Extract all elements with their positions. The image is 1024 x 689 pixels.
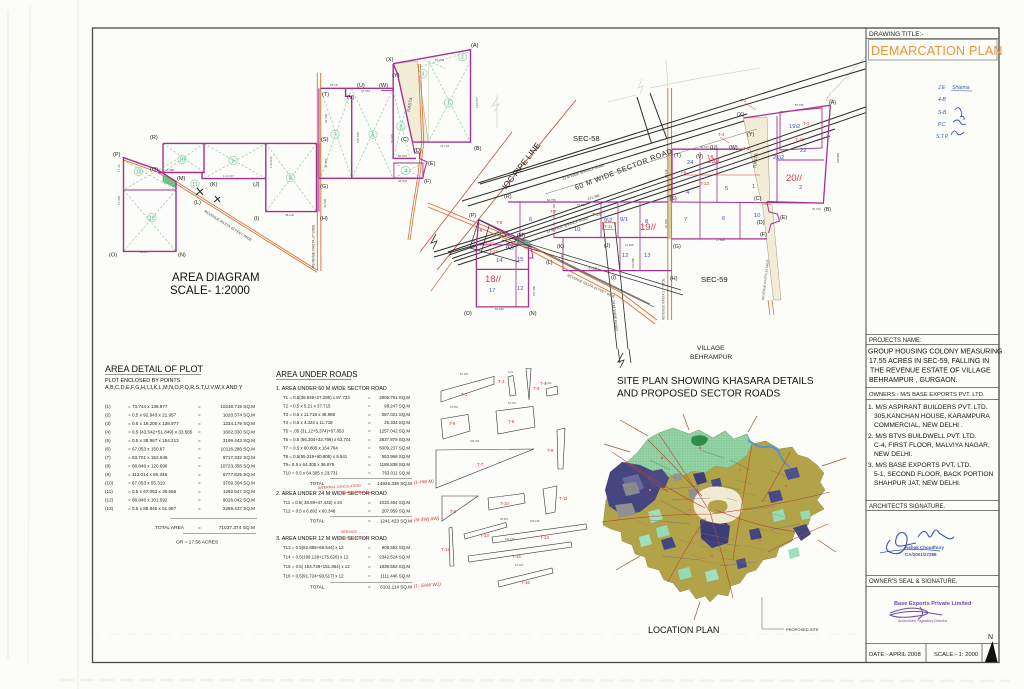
svg-text:207.959 SQ.M: 207.959 SQ.M <box>382 508 411 513</box>
svg-text:SERVICE: SERVICE <box>341 530 357 534</box>
svg-text:7: 7 <box>334 133 337 139</box>
svg-text:15: 15 <box>517 257 523 263</box>
svg-text:T-14: T-14 <box>592 212 601 217</box>
svg-text:=: = <box>368 403 371 408</box>
svg-text:(A): (A) <box>829 100 836 106</box>
svg-text:TOTAL: TOTAL <box>310 585 325 590</box>
svg-text:22: 22 <box>800 148 806 154</box>
svg-text:=: = <box>198 447 201 452</box>
svg-text:SCALE:- 1: 2000: SCALE:- 1: 2000 <box>934 652 979 658</box>
svg-text:24: 24 <box>687 160 694 166</box>
svg-text:10116.286 SQ.M: 10116.286 SQ.M <box>221 447 256 452</box>
svg-text:2. AREA UNDER 24 M WIDE SECTOR: 2. AREA UNDER 24 M WIDE SECTOR ROAD <box>276 491 387 497</box>
svg-text:1033.464 SQ.M: 1033.464 SQ.M <box>379 500 410 505</box>
svg-text:T-5: T-5 <box>707 154 714 159</box>
svg-text:4.324: 4.324 <box>545 381 552 385</box>
svg-text:(3): (3) <box>105 421 111 426</box>
svg-text:(G): (G) <box>673 244 681 250</box>
svg-text:T14 = 0.5(199.128+175.626) x 1: T14 = 0.5(199.128+175.626) x 12 <box>283 555 349 560</box>
svg-text:=: = <box>198 472 201 477</box>
svg-text:PLOT ENCLOSED BY POINTS: PLOT ENCLOSED BY POINTS <box>105 378 181 384</box>
svg-text:(Q): (Q) <box>150 167 158 173</box>
svg-text:1602.330 SQ.M: 1602.330 SQ.M <box>223 430 255 435</box>
svg-text:553.968 SQ.M: 553.968 SQ.M <box>382 454 411 459</box>
svg-text:T-1: T-1 <box>803 121 810 126</box>
svg-text:12: 12 <box>517 286 523 292</box>
svg-text:12.319: 12.319 <box>625 243 634 247</box>
svg-text:=: = <box>368 574 371 579</box>
svg-text:53.627: 53.627 <box>560 254 564 263</box>
svg-text:=: = <box>368 395 371 400</box>
svg-text:1.53.036: 1.53.036 <box>269 156 273 168</box>
svg-text:(L): (L) <box>194 200 201 206</box>
svg-text:9/1: 9/1 <box>620 217 628 223</box>
svg-text:Ashok Choudhury: Ashok Choudhury <box>905 545 944 550</box>
svg-text:T-16: T-16 <box>795 137 804 142</box>
svg-text:Sharma: Sharma <box>952 85 970 91</box>
svg-text:T-12: T-12 <box>588 266 597 271</box>
svg-text:=: = <box>368 508 371 513</box>
svg-text:1.2.3.17: 1.2.3.17 <box>223 174 234 178</box>
svg-text:17.36: 17.36 <box>117 164 121 172</box>
svg-text:= 88.846 x 101.592: = 88.846 x 101.592 <box>128 498 168 503</box>
svg-text:50.607: 50.607 <box>398 154 408 158</box>
svg-text:17.648: 17.648 <box>716 238 725 242</box>
svg-text:(M): (M) <box>177 176 186 182</box>
svg-text:T-13: T-13 <box>700 181 709 186</box>
svg-text:=: = <box>198 481 201 486</box>
svg-text:= 0.5 x 38.967 x 164.213: = 0.5 x 38.967 x 164.213 <box>128 438 179 443</box>
svg-text:19\2: 19\2 <box>789 124 800 130</box>
svg-text:1188.838 SQ.M: 1188.838 SQ.M <box>380 462 411 467</box>
svg-text:(P): (P) <box>469 213 476 219</box>
svg-text:47.054: 47.054 <box>361 89 371 93</box>
svg-text:=: = <box>198 455 201 460</box>
svg-text:T5 = .05 (31.12+5.374)+67.053: T5 = .05 (31.12+5.374)+67.053 <box>283 429 344 434</box>
svg-text:(D): (D) <box>414 148 422 154</box>
svg-text:T-15: T-15 <box>512 554 521 559</box>
svg-text:87.733: 87.733 <box>460 372 468 376</box>
svg-text:TOTAL: TOTAL <box>310 519 325 524</box>
svg-text:(F): (F) <box>760 232 767 238</box>
svg-text:(L): (L) <box>546 260 553 266</box>
svg-text:8: 8 <box>289 176 292 182</box>
svg-text:=: = <box>368 454 371 459</box>
svg-text:(R): (R) <box>504 194 512 200</box>
svg-text:(10): (10) <box>105 481 114 486</box>
svg-text:=: = <box>368 555 371 560</box>
svg-text:138.984: 138.984 <box>836 152 840 163</box>
svg-text:10: 10 <box>179 158 185 164</box>
svg-text:1111.446 SQ.M: 1111.446 SQ.M <box>380 574 410 579</box>
svg-text:= 67.053 x 150.87: = 67.053 x 150.87 <box>128 447 165 452</box>
svg-text:NEW DELHI.: NEW DELHI. <box>874 451 913 458</box>
svg-text:T-5: T-5 <box>508 419 515 424</box>
svg-text:1839.552 SQ.M: 1839.552 SQ.M <box>379 564 410 569</box>
svg-text:5.21: 5.21 <box>508 370 514 374</box>
svg-text:(6): (6) <box>105 447 111 452</box>
svg-text:(S): (S) <box>321 137 329 143</box>
svg-text:199.128: 199.128 <box>530 519 540 523</box>
svg-text:138.977: 138.977 <box>475 97 479 108</box>
svg-text:3199.443 SQ.M: 3199.443 SQ.M <box>223 438 255 443</box>
svg-text:150.546: 150.546 <box>356 132 360 143</box>
svg-text:SEC-58: SEC-58 <box>573 134 600 143</box>
svg-text:62.040: 62.040 <box>495 307 504 311</box>
svg-text:PROPOSED SITE: PROPOSED SITE <box>786 627 819 632</box>
svg-text:(2): (2) <box>105 413 111 418</box>
svg-text:5: 5 <box>725 186 728 192</box>
svg-text:(9): (9) <box>105 472 111 477</box>
svg-text:=: = <box>368 519 371 524</box>
svg-text:(S): (S) <box>670 196 677 202</box>
svg-text:T6 = 0.5 (56.304+32.796) x 63.: T6 = 0.5 (56.304+32.796) x 63.701 <box>283 437 351 442</box>
svg-text:REVENUE RASTA 17' WIDE: REVENUE RASTA 17' WIDE <box>312 224 316 268</box>
svg-text:(W): (W) <box>379 83 388 89</box>
svg-text:T3 = 0.5 x 11.718 x 48.988: T3 = 0.5 x 11.718 x 48.988 <box>283 412 336 417</box>
svg-text:(T): (T) <box>322 92 329 98</box>
svg-text:3. AREA UNDER 12 M WIDE SECTOR: 3. AREA UNDER 12 M WIDE SECTOR ROAD <box>276 536 387 542</box>
svg-text:=: = <box>368 445 371 450</box>
svg-text:(F): (F) <box>424 179 431 185</box>
svg-text:19//: 19// <box>640 222 656 233</box>
svg-text:63.701: 63.701 <box>508 401 516 405</box>
svg-text:T-7: T-7 <box>477 462 484 467</box>
svg-text:= 0.5 x 92.943 x 21.957: = 0.5 x 92.943 x 21.957 <box>128 413 177 418</box>
svg-text:17.356: 17.356 <box>117 195 121 205</box>
svg-text:(O): (O) <box>109 253 117 259</box>
svg-text:(N): (N) <box>178 253 186 259</box>
svg-text:47.380: 47.380 <box>165 168 175 172</box>
svg-text:T-11: T-11 <box>604 224 613 229</box>
svg-text:=: = <box>198 498 201 503</box>
svg-text:T13 = 0.5(82.888+68.544) x 12: T13 = 0.5(82.888+68.544) x 12 <box>283 545 344 550</box>
svg-text:62.24: 62.24 <box>140 250 148 254</box>
svg-text:98.247 SQ.M: 98.247 SQ.M <box>384 403 410 408</box>
svg-text:(C): (C) <box>401 137 409 143</box>
svg-text:DRAWING TITLE:-: DRAWING TITLE:- <box>869 31 924 38</box>
svg-text:T-13: T-13 <box>489 249 498 254</box>
svg-text:T-6: T-6 <box>680 170 687 175</box>
svg-text:2269.437 SQ.M: 2269.437 SQ.M <box>223 506 255 511</box>
svg-text:3709.304 SQ.M: 3709.304 SQ.M <box>223 481 255 486</box>
svg-text:1241.423 SQ.M: 1241.423 SQ.M <box>380 519 412 524</box>
svg-text:(N): (N) <box>529 311 537 317</box>
svg-text:AREA DETAIL OF PLOT: AREA DETAIL OF PLOT <box>105 364 204 374</box>
svg-text:287.021 SQ.M: 287.021 SQ.M <box>382 412 411 417</box>
svg-text:(O): (O) <box>464 311 472 317</box>
svg-text:AREA DIAGRAM: AREA DIAGRAM <box>172 272 260 284</box>
svg-text:Authorised Signatory Director: Authorised Signatory Director <box>898 619 948 623</box>
svg-text:92.796: 92.796 <box>324 113 328 123</box>
svg-text:T-8: T-8 <box>449 421 456 426</box>
svg-text:T16 = 0.5(91.724+93.517) x 12: T16 = 0.5(91.724+93.517) x 12 <box>283 574 344 579</box>
svg-text:BEHRAMPUR: BEHRAMPUR <box>690 354 732 361</box>
svg-text:AREA UNDER ROADS: AREA UNDER ROADS <box>276 370 358 379</box>
svg-text:= 73.744 x 138.977: = 73.744 x 138.977 <box>128 404 168 409</box>
svg-text:T1 = 0.5(38.949+27.295) x 87.7: T1 = 0.5(38.949+27.295) x 87.733 <box>283 395 350 400</box>
svg-text:(K): (K) <box>557 244 564 250</box>
svg-text:908.592 SQ.M: 908.592 SQ.M <box>382 545 411 550</box>
svg-text:OWNERS:- M/S BASE EXPORTS PVT.: OWNERS:- M/S BASE EXPORTS PVT. LTD. <box>869 392 985 398</box>
svg-text:67.736: 67.736 <box>795 103 804 107</box>
svg-text:T-3: T-3 <box>743 146 750 151</box>
svg-text:(Y): (Y) <box>392 73 400 79</box>
svg-text:= 67.053 x 55.319: = 67.053 x 55.319 <box>128 481 165 486</box>
svg-text:T-14: T-14 <box>540 535 549 540</box>
svg-text:BEHRAMPUR , GURGAON.: BEHRAMPUR , GURGAON. <box>869 377 958 384</box>
svg-text:A,B,C,D,E,F,G,H,I,J,K,L,M,N,O,: A,B,C,D,E,F,G,H,I,J,K,L,M,N,O,P,Q,R,S,T,… <box>105 385 243 391</box>
svg-text:1: 1 <box>752 184 755 190</box>
svg-text:=: = <box>368 564 371 569</box>
svg-text:=: = <box>368 481 371 486</box>
svg-text:64.75: 64.75 <box>330 83 338 87</box>
svg-text:(T): (T) <box>674 153 681 159</box>
svg-text:(W): (W) <box>729 145 738 151</box>
svg-text:60.707: 60.707 <box>700 145 709 149</box>
svg-text:N: N <box>988 634 993 641</box>
svg-text:DATE:- APRIL 2008: DATE:- APRIL 2008 <box>869 652 921 658</box>
svg-text:SITE PLAN SHOWING KHASARA DETA: SITE PLAN SHOWING KHASARA DETAILS <box>617 376 814 387</box>
svg-text:17.55 ACRES IN SEC-59, FALLING: 17.55 ACRES IN SEC-59, FALLING IN <box>869 358 989 365</box>
svg-text:84.756: 84.756 <box>547 198 556 202</box>
svg-text:(C): (C) <box>754 196 762 202</box>
svg-text:(E): (E) <box>428 161 436 167</box>
svg-text:(4): (4) <box>105 430 111 435</box>
svg-text:T2 = 0.5 x 5.21 x 37.715: T2 = 0.5 x 5.21 x 37.715 <box>283 403 331 408</box>
svg-text:2342.524 SQ.M: 2342.524 SQ.M <box>379 555 410 560</box>
svg-text:9026.042 SQ.M: 9026.042 SQ.M <box>223 498 255 503</box>
svg-text:PROJECTS NAME:: PROJECTS NAME: <box>869 338 922 344</box>
svg-text:Base Exports Private Limited: Base Exports Private Limited <box>894 601 972 607</box>
svg-text:S.T.P.: S.T.P. <box>936 134 949 140</box>
svg-text:10: 10 <box>754 213 760 219</box>
svg-text:OWNER'S SEAL & SIGNATURE.: OWNER'S SEAL & SIGNATURE. <box>869 579 958 585</box>
svg-text:4-B: 4-B <box>938 97 946 103</box>
svg-text:T-1: T-1 <box>461 392 468 397</box>
svg-text:(M): (M) <box>517 233 525 239</box>
svg-text:18//: 18// <box>485 274 501 285</box>
svg-text:10248.719 SQ.M: 10248.719 SQ.M <box>220 404 255 409</box>
svg-text:64.138: 64.138 <box>664 169 668 178</box>
svg-text:P.C: P.C <box>938 122 946 128</box>
svg-text:(13): (13) <box>105 506 114 511</box>
svg-text:6: 6 <box>372 133 375 139</box>
svg-text:CA/2001/27298: CA/2001/27298 <box>905 552 937 557</box>
svg-text:= 0.5 x 19.200 x 138.977: = 0.5 x 19.200 x 138.977 <box>128 421 179 426</box>
svg-text:(1): (1) <box>105 404 111 409</box>
svg-text:= 0.5 x 67.053 x 38.556: = 0.5 x 67.053 x 38.556 <box>128 489 177 494</box>
svg-text:COMMERCIAL, NEW DELHI .: COMMERCIAL, NEW DELHI . <box>874 422 963 429</box>
svg-text:48.586: 48.586 <box>324 158 328 168</box>
svg-text:T-13: T-13 <box>480 533 489 538</box>
svg-text:(X): (X) <box>386 57 394 63</box>
svg-text:55.319: 55.319 <box>500 517 508 521</box>
svg-text:GROUP HOUSING COLONY MEASURING: GROUP HOUSING COLONY MEASURING <box>868 349 1002 356</box>
svg-text:1334.179 SQ.M: 1334.179 SQ.M <box>223 421 255 426</box>
svg-text:6: 6 <box>722 216 725 222</box>
svg-text:T8 = 0.5(55.319+60.805) x 9.54: T8 = 0.5(55.319+60.805) x 9.541 <box>283 454 348 459</box>
svg-text:2: 2 <box>461 55 464 61</box>
svg-text:(X): (X) <box>737 112 744 118</box>
svg-text:7: 7 <box>684 217 687 223</box>
svg-text:87.849: 87.849 <box>435 58 445 62</box>
svg-text:(J): (J) <box>253 182 260 188</box>
svg-text:TOTAL AREA: TOTAL AREA <box>155 525 185 531</box>
svg-text:ARCHITECTS SIGNATURE.: ARCHITECTS SIGNATURE. <box>869 504 946 510</box>
svg-text:VILLAGE: VILLAGE <box>697 345 725 352</box>
svg-text:(D): (D) <box>757 220 765 226</box>
svg-text:48.240: 48.240 <box>285 213 295 217</box>
svg-text:= 0.5 (43.542+51.849) x 33.585: = 0.5 (43.542+51.849) x 33.585 <box>128 430 193 435</box>
svg-text:=: = <box>198 404 201 409</box>
svg-text:14: 14 <box>496 258 503 264</box>
svg-text:T9= 0.5 x 64.305 x 36.975: T9= 0.5 x 64.305 x 36.975 <box>283 462 335 467</box>
svg-text:=: = <box>198 526 201 531</box>
svg-text:(J): (J) <box>604 243 610 249</box>
svg-text:T4 = 0.5 x 4.324 x 11.718: T4 = 0.5 x 4.324 x 11.718 <box>283 420 333 425</box>
svg-text:=: = <box>198 438 201 443</box>
svg-text:T-3: T-3 <box>533 386 540 391</box>
svg-text:T-9: T-9 <box>547 448 554 453</box>
svg-text:= 88.846 x 120.696: = 88.846 x 120.696 <box>128 464 168 469</box>
svg-text:25.334 SQ.M: 25.334 SQ.M <box>384 420 410 425</box>
svg-text:42.540: 42.540 <box>323 198 327 208</box>
svg-text:=: = <box>368 420 371 425</box>
svg-text:(I): (I) <box>254 216 259 222</box>
svg-text:154.728: 154.728 <box>505 537 515 541</box>
svg-text:(R): (R) <box>150 135 158 141</box>
svg-text:6777.825 SQ.M: 6777.825 SQ.M <box>223 472 255 477</box>
svg-text:T-2: T-2 <box>740 98 747 103</box>
svg-text:= 63.701 x 152.546: = 63.701 x 152.546 <box>128 455 168 460</box>
svg-text:J.E: J.E <box>937 85 946 91</box>
svg-text:LOCATION PLAN: LOCATION PLAN <box>648 625 719 635</box>
svg-text:T-11: T-11 <box>559 496 568 501</box>
svg-text:67.053: 67.053 <box>450 405 458 409</box>
svg-text:C-4, FIRST FLOOR, MALVIYA NAGA: C-4, FIRST FLOOR, MALVIYA NAGAR, <box>874 442 990 449</box>
svg-text:11: 11 <box>192 182 197 188</box>
svg-text:(I): (I) <box>611 275 616 281</box>
svg-text:6102.114 SQ.M: 6102.114 SQ.M <box>380 585 412 590</box>
svg-text:(Q): (Q) <box>506 245 514 251</box>
svg-text:(G): (G) <box>320 184 328 190</box>
svg-text:=: = <box>368 500 371 505</box>
svg-text:13: 13 <box>136 170 142 176</box>
svg-text:(H): (H) <box>670 276 678 282</box>
svg-text:(5): (5) <box>105 438 111 443</box>
svg-text:T-8: T-8 <box>496 220 503 225</box>
svg-text:763.011 SQ.M: 763.011 SQ.M <box>382 471 410 476</box>
svg-text:56.870: 56.870 <box>390 133 394 143</box>
svg-text:= 0.5 x 88.846 x 51.087: = 0.5 x 88.846 x 51.087 <box>128 506 177 511</box>
svg-text:SHAHPUR JAT, NEW DELHI.: SHAHPUR JAT, NEW DELHI. <box>874 480 961 487</box>
svg-text:2837.879 SQ.M: 2837.879 SQ.M <box>379 437 410 442</box>
svg-text:T7 = 0.5 x 60.805 x 164.764: T7 = 0.5 x 60.805 x 164.764 <box>283 445 338 450</box>
svg-text:1. M/S ASPIRANT BUILDERS PVT.: 1. M/S ASPIRANT BUILDERS PVT. LTD. <box>868 404 988 411</box>
svg-text:1. AREA UNDER 60 M WIDE SECTOR: 1. AREA UNDER 60 M WIDE SECTOR ROAD <box>276 386 387 392</box>
svg-text:13: 13 <box>644 253 650 259</box>
svg-text:THE REVENUE ESTATE OF VILLAGE: THE REVENUE ESTATE OF VILLAGE <box>870 368 991 375</box>
svg-text:(7): (7) <box>105 455 111 460</box>
svg-text:5009.237 SQ.M: 5009.237 SQ.M <box>379 445 410 450</box>
svg-text:2905.761 SQ.M: 2905.761 SQ.M <box>379 395 410 400</box>
svg-text:91.724: 91.724 <box>515 563 523 567</box>
svg-text:72.744: 72.744 <box>812 207 821 211</box>
svg-text:4: 4 <box>404 168 407 174</box>
svg-text:SCALE- 1:2000: SCALE- 1:2000 <box>170 285 250 297</box>
svg-text:73.744: 73.744 <box>440 144 450 148</box>
svg-text:AND PROPOSED SECTOR ROADS: AND PROPOSED SECTOR ROADS <box>617 389 781 400</box>
svg-text:305,KANCHAN HOUSE, KARAMPURA: 305,KANCHAN HOUSE, KARAMPURA <box>874 413 990 420</box>
svg-text:T-10: T-10 <box>485 241 494 246</box>
svg-text:(B): (B) <box>474 146 482 152</box>
svg-text:(8): (8) <box>105 464 111 469</box>
svg-text:(K): (K) <box>210 182 218 188</box>
svg-text:(V): (V) <box>696 154 703 160</box>
svg-text:T-4: T-4 <box>718 132 725 137</box>
svg-text:= 112.014 x 60.348: = 112.014 x 60.348 <box>128 472 168 477</box>
svg-text:3. M/S BASE EXPORTS PVT. LTD.: 3. M/S BASE EXPORTS PVT. LTD. <box>868 462 971 469</box>
svg-text:(H): (H) <box>320 216 328 222</box>
svg-text:14926.338 SQ.M: 14926.338 SQ.M <box>377 481 412 486</box>
svg-text:(P): (P) <box>113 152 121 158</box>
svg-text:42.540: 42.540 <box>398 179 408 183</box>
svg-text:T-2: T-2 <box>498 379 505 384</box>
svg-text:1292.647 SQ.M: 1292.647 SQ.M <box>223 489 255 494</box>
svg-text:=: = <box>368 429 371 434</box>
svg-text:=: = <box>198 421 201 426</box>
svg-text:1020.374 SQ.M: 1020.374 SQ.M <box>223 413 255 418</box>
svg-text:62.368: 62.368 <box>664 219 668 228</box>
svg-text:12: 12 <box>622 253 628 259</box>
svg-text:10723.356 SQ.M: 10723.356 SQ.M <box>220 464 255 469</box>
svg-text:=: = <box>368 545 371 550</box>
svg-text:5: 5 <box>400 124 403 130</box>
svg-text:(V): (V) <box>347 95 355 101</box>
svg-text:17: 17 <box>489 288 495 294</box>
svg-text:(U): (U) <box>710 145 718 151</box>
svg-text:(B): (B) <box>824 207 831 213</box>
svg-text:T-9: T-9 <box>450 509 457 514</box>
svg-text:1257.042 SQ.M: 1257.042 SQ.M <box>379 429 410 434</box>
svg-text:T15 = 0.5( 154.728+151.864) x: T15 = 0.5( 154.728+151.864) x 12 <box>283 564 350 569</box>
svg-text:=: = <box>198 430 201 435</box>
svg-text:12: 12 <box>149 216 155 222</box>
svg-text:T12 = 0.5 x 6.892 x 60.348: T12 = 0.5 x 6.892 x 60.348 <box>283 508 336 513</box>
svg-text:9: 9 <box>232 159 235 165</box>
svg-text:S-B: S-B <box>938 110 947 116</box>
svg-text:137.380: 137.380 <box>532 285 536 296</box>
svg-text:(A): (A) <box>471 43 479 49</box>
svg-text:=: = <box>368 462 371 467</box>
svg-text:T11 = 0.5( 38.69+47.432) x 24: T11 = 0.5( 38.69+47.432) x 24 <box>283 500 343 505</box>
svg-text:=: = <box>198 489 201 494</box>
svg-text:164.764: 164.764 <box>470 439 480 443</box>
svg-text:=: = <box>368 437 371 442</box>
svg-text:63.170: 63.170 <box>472 239 476 248</box>
svg-text:=: = <box>368 412 371 417</box>
svg-text:T-10: T-10 <box>500 501 509 506</box>
svg-text:T-12: T-12 <box>441 547 450 552</box>
svg-text:3: 3 <box>422 72 425 78</box>
svg-text:T10 = 0.5 x 64.305 x 23.731: T10 = 0.5 x 64.305 x 23.731 <box>283 471 338 476</box>
svg-text:=: = <box>198 506 201 511</box>
svg-text:=: = <box>198 413 201 418</box>
svg-text:=: = <box>198 464 201 469</box>
svg-text:2. M/S BTVS BUILDWELL PVT. LT: 2. M/S BTVS BUILDWELL PVT. LTD. <box>868 433 977 440</box>
svg-text:(11): (11) <box>105 489 113 494</box>
